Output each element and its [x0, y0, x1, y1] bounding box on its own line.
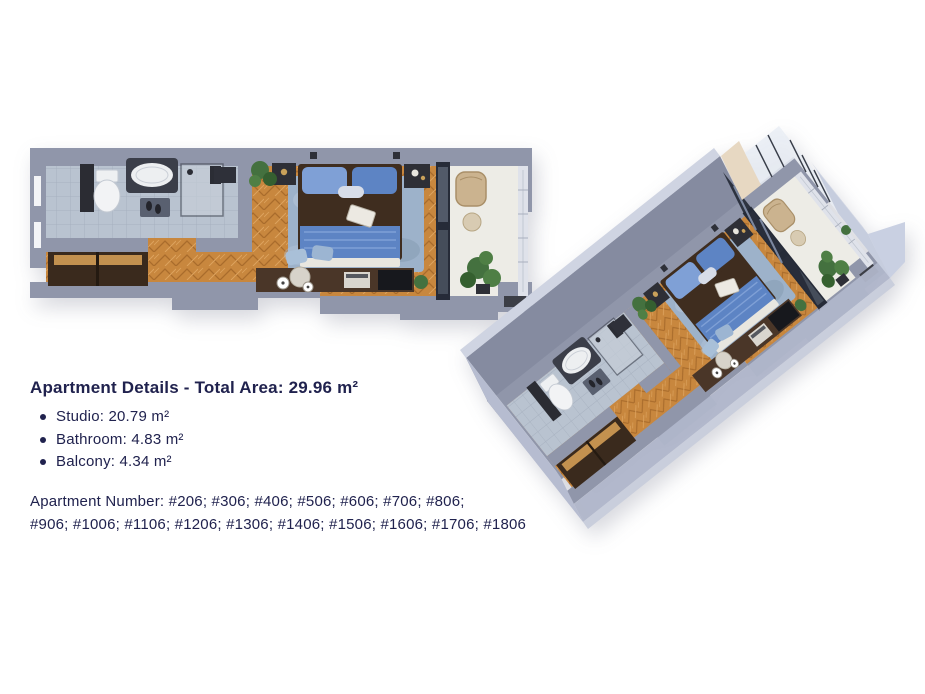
bullet-dot	[40, 459, 46, 465]
detail-studio: Studio: 20.79 m²	[56, 406, 169, 429]
floorplans-graphic	[0, 0, 925, 694]
bullet-dot	[40, 414, 46, 420]
apartment-numbers-line1: Apartment Number: #206; #306; #406; #506…	[30, 490, 550, 513]
list-item: Bathroom: 4.83 m²	[40, 429, 550, 452]
apartment-details: Apartment Details - Total Area: 29.96 m²…	[30, 378, 550, 536]
detail-balcony: Balcony: 4.34 m²	[56, 451, 172, 474]
detail-bathroom: Bathroom: 4.83 m²	[56, 429, 184, 452]
details-title: Apartment Details - Total Area: 29.96 m²	[30, 378, 550, 398]
apartment-numbers-line2: #906; #1006; #1106; #1206; #1306; #1406;…	[30, 513, 550, 536]
apartment-numbers: Apartment Number: #206; #306; #406; #506…	[30, 490, 550, 536]
list-item: Balcony: 4.34 m²	[40, 451, 550, 474]
list-item: Studio: 20.79 m²	[40, 406, 550, 429]
floorplan-top-view	[30, 148, 532, 320]
bullet-dot	[40, 437, 46, 443]
details-list: Studio: 20.79 m² Bathroom: 4.83 m² Balco…	[30, 406, 550, 474]
